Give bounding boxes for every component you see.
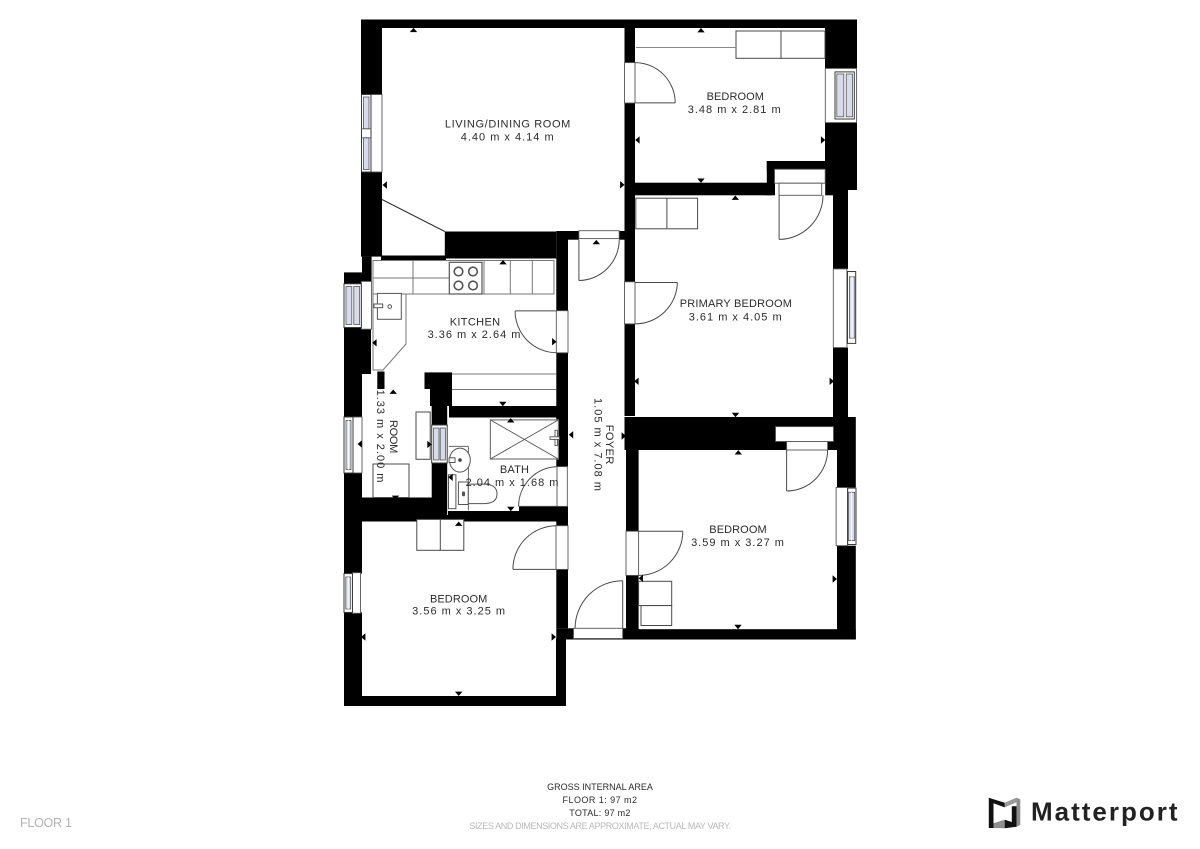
svg-text:TOTAL: 97 m2: TOTAL: 97 m2 [569, 808, 630, 818]
svg-text:BEDROOM: BEDROOM [430, 594, 487, 606]
svg-text:1.05 m x 7.08 m: 1.05 m x 7.08 m [591, 398, 603, 492]
svg-text:Matterport: Matterport [1031, 797, 1180, 827]
svg-text:3.59 m x 3.27 m: 3.59 m x 3.27 m [691, 537, 785, 549]
svg-text:PRIMARY BEDROOM: PRIMARY BEDROOM [680, 298, 792, 310]
svg-text:KITCHEN: KITCHEN [450, 316, 501, 328]
svg-text:GROSS INTERNAL AREA: GROSS INTERNAL AREA [547, 782, 653, 792]
svg-text:4.40 m x 4.14 m: 4.40 m x 4.14 m [461, 132, 555, 144]
svg-text:FOYER: FOYER [603, 425, 615, 465]
svg-text:SIZES AND DIMENSIONS ARE APPRO: SIZES AND DIMENSIONS ARE APPROXIMATE, AC… [469, 821, 730, 831]
svg-text:3.56 m x 3.25 m: 3.56 m x 3.25 m [412, 606, 506, 618]
svg-text:BEDROOM: BEDROOM [709, 524, 766, 536]
svg-text:1.33 m x 2.00 m: 1.33 m x 2.00 m [374, 390, 386, 484]
svg-text:FLOOR 1: 97 m2: FLOOR 1: 97 m2 [563, 795, 638, 805]
svg-text:3.61 m x 4.05 m: 3.61 m x 4.05 m [689, 312, 783, 324]
svg-text:2.04 m x 1.68 m: 2.04 m x 1.68 m [466, 477, 560, 489]
svg-text:BEDROOM: BEDROOM [707, 91, 764, 103]
svg-text:FLOOR 1: FLOOR 1 [20, 816, 72, 830]
svg-text:3.48 m x 2.81 m: 3.48 m x 2.81 m [688, 104, 782, 116]
svg-text:ROOM: ROOM [387, 420, 399, 453]
svg-text:BATH: BATH [500, 464, 529, 476]
svg-text:3.36 m x 2.64 m: 3.36 m x 2.64 m [428, 329, 522, 341]
svg-text:LIVING/DINING ROOM: LIVING/DINING ROOM [445, 119, 571, 131]
